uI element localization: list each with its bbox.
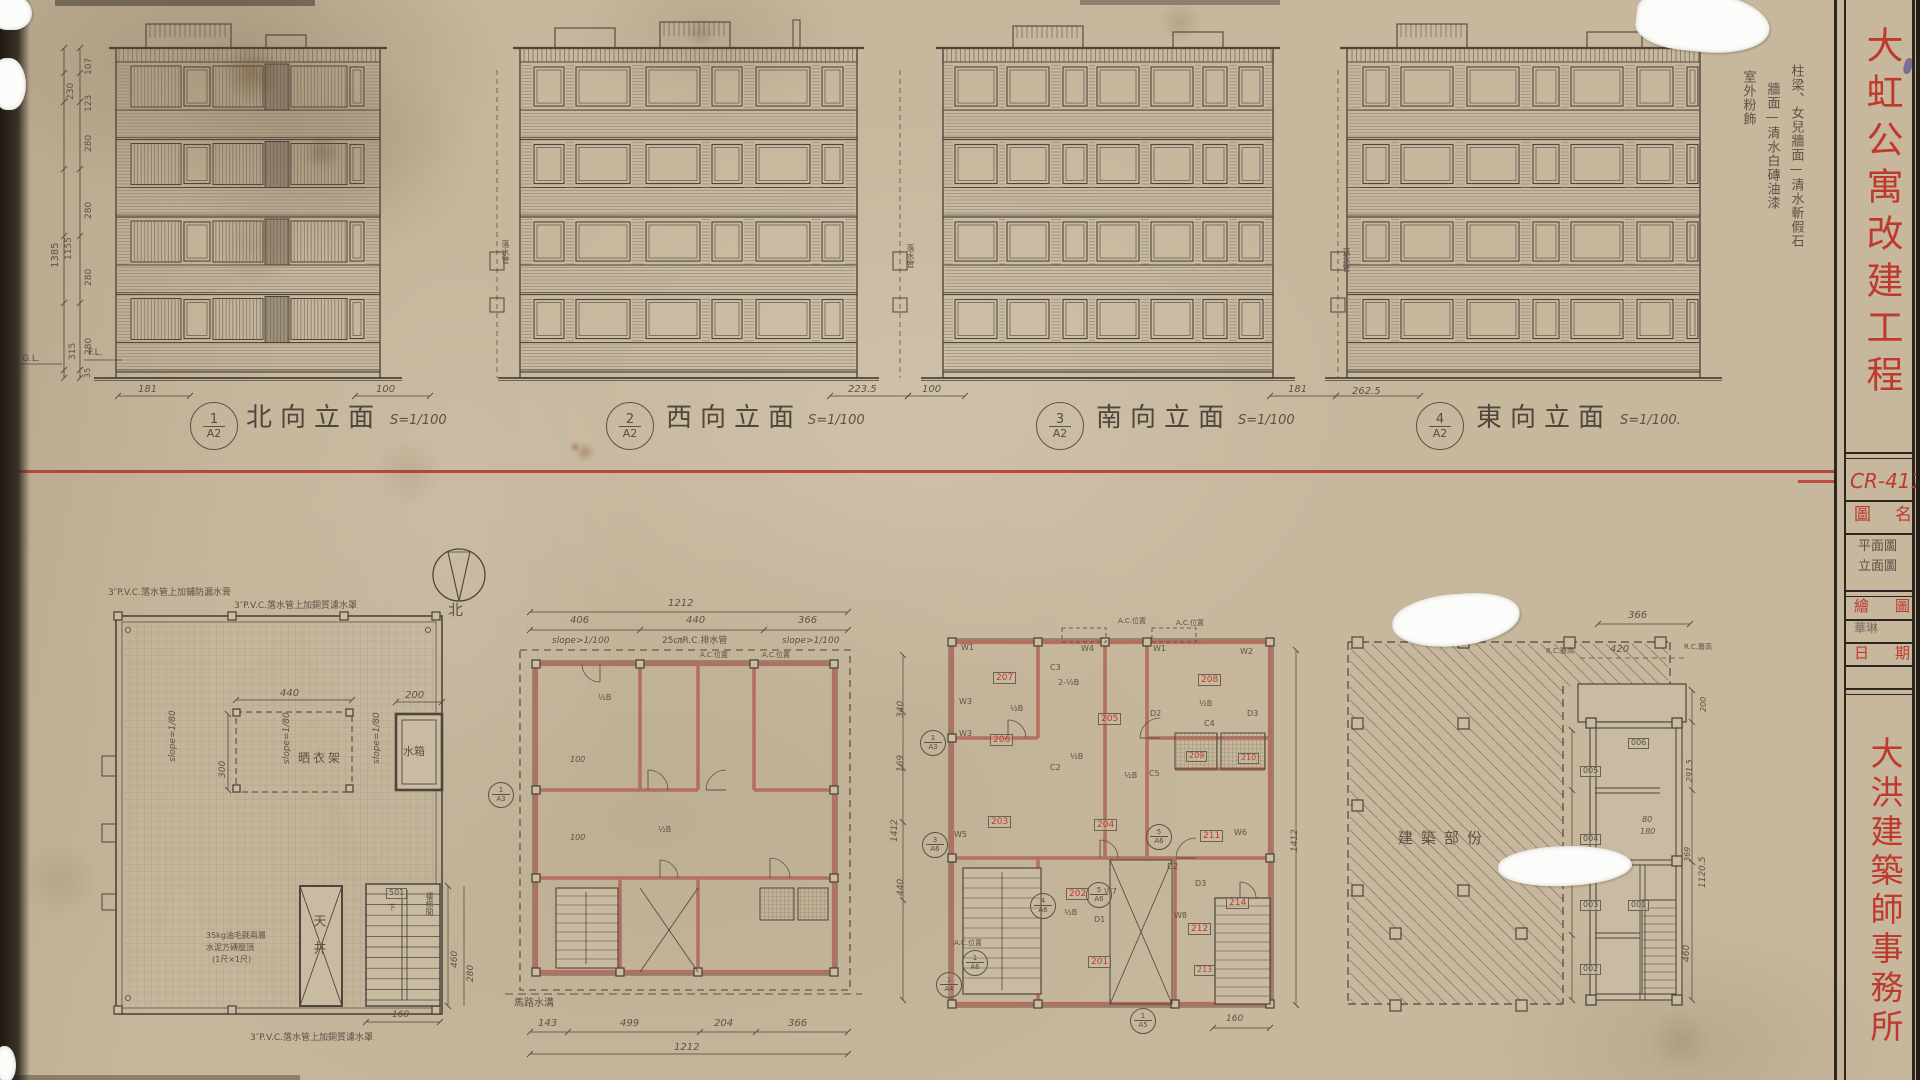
door-tag: D3	[1195, 880, 1206, 889]
slope-label: slope=1/80	[372, 712, 382, 764]
dim-label: 300	[218, 761, 228, 778]
drying-rack-label: 晒衣架	[298, 752, 343, 765]
section-number: 1	[499, 787, 503, 794]
gutter-label: 馬路水溝	[514, 998, 554, 1009]
dim-label: 180	[1640, 828, 1655, 837]
elevation-scale: S=1/100	[808, 414, 865, 429]
project-title: 大虹公寓改建工程	[1856, 26, 1902, 446]
dim-label: 160	[1226, 1014, 1243, 1024]
roof-plan-drawing	[102, 612, 464, 1025]
door-tag: D1	[1094, 916, 1105, 925]
room-number: 213	[1194, 965, 1215, 976]
coping-note: 35kg油毛氈兩層	[206, 932, 266, 941]
drawing-number: CR-411	[1850, 470, 1912, 492]
elevation-title-west: 西向立面	[666, 404, 802, 433]
dim-label: 460	[450, 951, 460, 968]
dim-label: 100	[570, 756, 585, 765]
dim-label: 181	[1288, 384, 1307, 395]
room-number: 211	[1200, 830, 1223, 842]
room-number: 201	[1088, 956, 1111, 968]
wall-thickness-label: 2-½B	[1058, 679, 1079, 688]
section-sheet: A4	[940, 984, 957, 993]
section-number: 4	[1041, 898, 1045, 905]
elevation-north-drawing	[94, 24, 402, 381]
dim-label: 340	[896, 701, 906, 718]
dim-label: 160	[392, 1010, 409, 1020]
section-marker: 1A3	[920, 730, 946, 756]
dim-label: 499	[620, 1018, 639, 1029]
room-number: 501	[386, 888, 407, 899]
elevation-key-north: 1 A2	[190, 402, 238, 450]
section-number: 1	[973, 955, 977, 962]
room-number: 212	[1188, 923, 1211, 935]
window-tag: W4	[1081, 645, 1094, 654]
dim-label: 280	[84, 202, 94, 219]
drawing-name-label: 圖名	[1850, 506, 1916, 525]
ground-line-label: G.L.	[22, 354, 40, 364]
drawing-name-value: 平面圖	[1858, 540, 1897, 555]
wall-thickness-label: ½B	[1064, 909, 1077, 918]
red-tick	[1798, 480, 1836, 483]
drawing-sheet: 107 123 230 280 280 1385 1155 280 315 28…	[0, 0, 1920, 1080]
red-datum-line	[0, 470, 1836, 473]
room-number: 214	[1226, 897, 1249, 909]
elevation-sheet: A2	[619, 426, 642, 439]
section-number: 1	[1141, 1013, 1145, 1020]
stair-down-label: 下	[388, 904, 396, 913]
door-tag: D2	[1167, 863, 1178, 872]
coping-note: (1尺×1尺)	[212, 956, 251, 965]
room-number: 001	[1628, 900, 1649, 911]
elevation-scale: S=1/100	[390, 414, 447, 429]
section-marker: 5A6	[1146, 824, 1172, 850]
room-number: 003	[1580, 900, 1601, 911]
elevation-sheet: A2	[1049, 426, 1072, 439]
section-marker: 1A4	[936, 972, 962, 998]
floor-plan-1-drawing	[505, 609, 906, 1057]
section-number: 5	[1097, 887, 1101, 894]
dim-label: 460	[1682, 945, 1692, 962]
dim-label: 369	[1684, 847, 1693, 862]
dim-label: 280	[84, 269, 94, 286]
dim-label: 420	[1610, 644, 1629, 655]
closet-tag: C3	[1050, 664, 1061, 673]
drawing-name-value: 立面圖	[1858, 560, 1897, 575]
section-sheet: A6	[1150, 836, 1167, 845]
elevation-title-north: 北向立面	[246, 404, 382, 433]
room-number: 207	[993, 672, 1016, 684]
dim-label: 123	[84, 95, 94, 112]
room-number: 209	[1186, 751, 1207, 762]
existing-building-label: 建築部份	[1398, 830, 1490, 847]
dim-label: 262.5	[1352, 386, 1381, 397]
elevation-number: 3	[1056, 413, 1064, 426]
elevation-west-drawing	[498, 22, 879, 381]
wall-thickness-label: ½B	[598, 694, 611, 703]
dim-label: 100	[922, 384, 941, 395]
dim-label: 200	[1700, 697, 1709, 712]
dim-label: 406	[570, 615, 589, 626]
section-sheet: A6	[1034, 905, 1051, 914]
coping-note: 水泥方磚壓頂	[206, 944, 254, 953]
dim-label: 35	[84, 368, 93, 378]
window-tag: W3	[959, 698, 972, 707]
drain-label: 25㎝R.C.排水管	[662, 636, 727, 646]
dim-label: 204	[714, 1018, 733, 1029]
stair-label: 樓梯間	[424, 892, 433, 942]
roof-note-top: 3″P.V.C.落水管上加銅質濾水罩	[234, 601, 357, 611]
dim-label: 280	[84, 135, 94, 152]
downspout-label: 落水管	[905, 244, 914, 288]
wall-thickness-label: ½B	[658, 826, 671, 835]
room-number: 004	[1580, 834, 1601, 845]
section-number: 1	[947, 977, 951, 984]
room-number: 210	[1238, 753, 1259, 764]
section-marker: 4A6	[1030, 893, 1056, 919]
dim-label: 1212	[668, 598, 693, 609]
elevation-key-south: 3 A2	[1036, 402, 1084, 450]
window-tag: W2	[1240, 648, 1253, 657]
floor-line-label: F.L.	[88, 348, 102, 358]
section-sheet: A6	[1090, 894, 1107, 903]
dim-label: 291.5	[1686, 759, 1695, 782]
room-number: 205	[1098, 713, 1121, 725]
dim-label: 143	[538, 1018, 557, 1029]
date-label: 日期	[1850, 645, 1916, 662]
closet-tag: C4	[1204, 720, 1215, 729]
light-well-label: 天井	[310, 914, 325, 984]
elevation-extras	[793, 20, 800, 48]
dim-label: 280	[466, 965, 476, 982]
dim-label: 223.5	[848, 384, 877, 395]
section-sheet: A6	[966, 962, 983, 971]
elevation-sheet: A2	[203, 426, 226, 439]
roof-note-bottom: 3″P.V.C.落水管上加銅質濾水罩	[250, 1033, 373, 1043]
wall-thickness-label: ½B	[1070, 753, 1083, 762]
elevation-number: 1	[210, 413, 218, 426]
ac-label: A.C.位置	[762, 652, 790, 660]
elevation-east-drawing	[1325, 24, 1722, 381]
elevation-key-west: 2 A2	[606, 402, 654, 450]
dim-label: 366	[788, 1018, 807, 1029]
dim-label: 169	[896, 755, 906, 772]
slope-label: slope=1/80	[168, 710, 178, 762]
elevation-title-south: 南向立面	[1096, 404, 1232, 433]
dim-label: 440	[896, 879, 906, 896]
wall-thickness-label: ½B	[1124, 772, 1137, 781]
section-sheet: A6	[926, 844, 943, 853]
elevation-scale: S=1/100.	[1620, 414, 1681, 429]
slope-label: slope>1/100	[782, 636, 839, 646]
north-arrow	[433, 549, 485, 601]
room-number: 203	[988, 816, 1011, 828]
wall-thickness-label: ½B	[1199, 700, 1212, 709]
section-sheet: A5	[1134, 1020, 1151, 1029]
window-tag: W1	[961, 644, 974, 653]
compass-north-label: 北	[448, 602, 463, 619]
section-number: 3	[933, 837, 937, 844]
door-tag: D3	[1247, 710, 1258, 719]
slope-label: slope=1/80	[282, 712, 292, 764]
dim-label: 80	[1642, 816, 1652, 825]
drafter-label: 繪圖	[1850, 598, 1916, 615]
ac-label: A.C.位置	[1176, 620, 1204, 628]
downspout-label: 落水管	[1341, 248, 1350, 292]
elevation-sheet: A2	[1429, 426, 1452, 439]
water-tank-label: 水箱	[403, 746, 425, 758]
dim-label: 1385	[50, 243, 61, 268]
window-tag: W1	[1153, 645, 1166, 654]
elevation-number: 2	[626, 413, 634, 426]
room-number: 005	[1580, 766, 1601, 777]
section-marker: 1A5	[1130, 1008, 1156, 1034]
dim-label: 1212	[674, 1042, 699, 1053]
dim-label: 440	[280, 688, 299, 699]
dim-label: 366	[798, 615, 817, 626]
dim-label: 1155	[64, 237, 74, 260]
firm-name: 大洪建築師事務所	[1858, 736, 1902, 1080]
dim-label: 1412	[890, 819, 900, 842]
ac-label: A.C.位置	[700, 652, 728, 660]
downspout-label: 落水管	[500, 240, 509, 284]
dim-label: 1412	[1290, 829, 1300, 852]
room-number: 006	[1628, 738, 1649, 749]
dim-label: 1120.5	[1698, 857, 1708, 889]
room-number: 206	[990, 734, 1013, 746]
dim-label: 181	[138, 384, 157, 395]
roof-note-top-left: 3″P.V.C.落水管上加鋪防漏水膏	[108, 588, 231, 598]
slope-label: slope>1/100	[552, 636, 609, 646]
wall-thickness-label: ½B	[1010, 705, 1023, 714]
section-number: 5	[1157, 829, 1161, 836]
elevation-key-east: 4 A2	[1416, 402, 1464, 450]
drafter-value: 華琳	[1854, 622, 1878, 635]
window-tag: W6	[1234, 829, 1247, 838]
closet-tag: C2	[1050, 764, 1061, 773]
window-tag: W3	[959, 730, 972, 739]
room-number: 208	[1198, 674, 1221, 686]
dim-label: 100	[570, 834, 585, 843]
finish-note-3: 室外粉飾	[1740, 70, 1755, 170]
rc-eave-note: R.C.簷高	[1684, 644, 1712, 652]
section-marker: 5A6	[1086, 882, 1112, 908]
section-marker: 1A6	[962, 950, 988, 976]
elevation-scale: S=1/100	[1238, 414, 1295, 429]
dim-label: 200	[405, 690, 424, 701]
closet-tag: C5	[1149, 770, 1160, 779]
room-number: 204	[1094, 819, 1117, 831]
line-work	[0, 0, 1920, 1080]
room-number: 002	[1580, 964, 1601, 975]
dim-label: 100	[376, 384, 395, 395]
section-number: 1	[931, 735, 935, 742]
elevation-south-drawing	[921, 26, 1295, 381]
dim-label: 440	[686, 615, 705, 626]
ac-label: A.C.位置	[1118, 618, 1146, 626]
ac-label: A.C.位置	[954, 940, 982, 948]
section-sheet: A3	[924, 742, 941, 751]
dim-label: 315	[68, 343, 78, 360]
dim-label: 107	[84, 58, 94, 75]
dim-label: 230	[66, 83, 76, 100]
elevation-number: 4	[1436, 413, 1444, 426]
section-sheet: A3	[492, 794, 509, 803]
section-marker: 1 A3	[488, 782, 514, 808]
section-marker: 3A6	[922, 832, 948, 858]
finish-note-1: 柱梁、女兒牆面—清水斬假石	[1788, 64, 1803, 314]
window-tag: W5	[954, 831, 967, 840]
window-tag: W8	[1174, 912, 1187, 921]
door-tag: D2	[1150, 710, 1161, 719]
elevation-title-east: 東向立面	[1476, 404, 1612, 433]
dim-label: 366	[1628, 610, 1647, 621]
finish-note-2: 牆面—清水白磚油漆	[1764, 82, 1779, 292]
rc-eave-note: R.C.簷高	[1546, 648, 1574, 656]
